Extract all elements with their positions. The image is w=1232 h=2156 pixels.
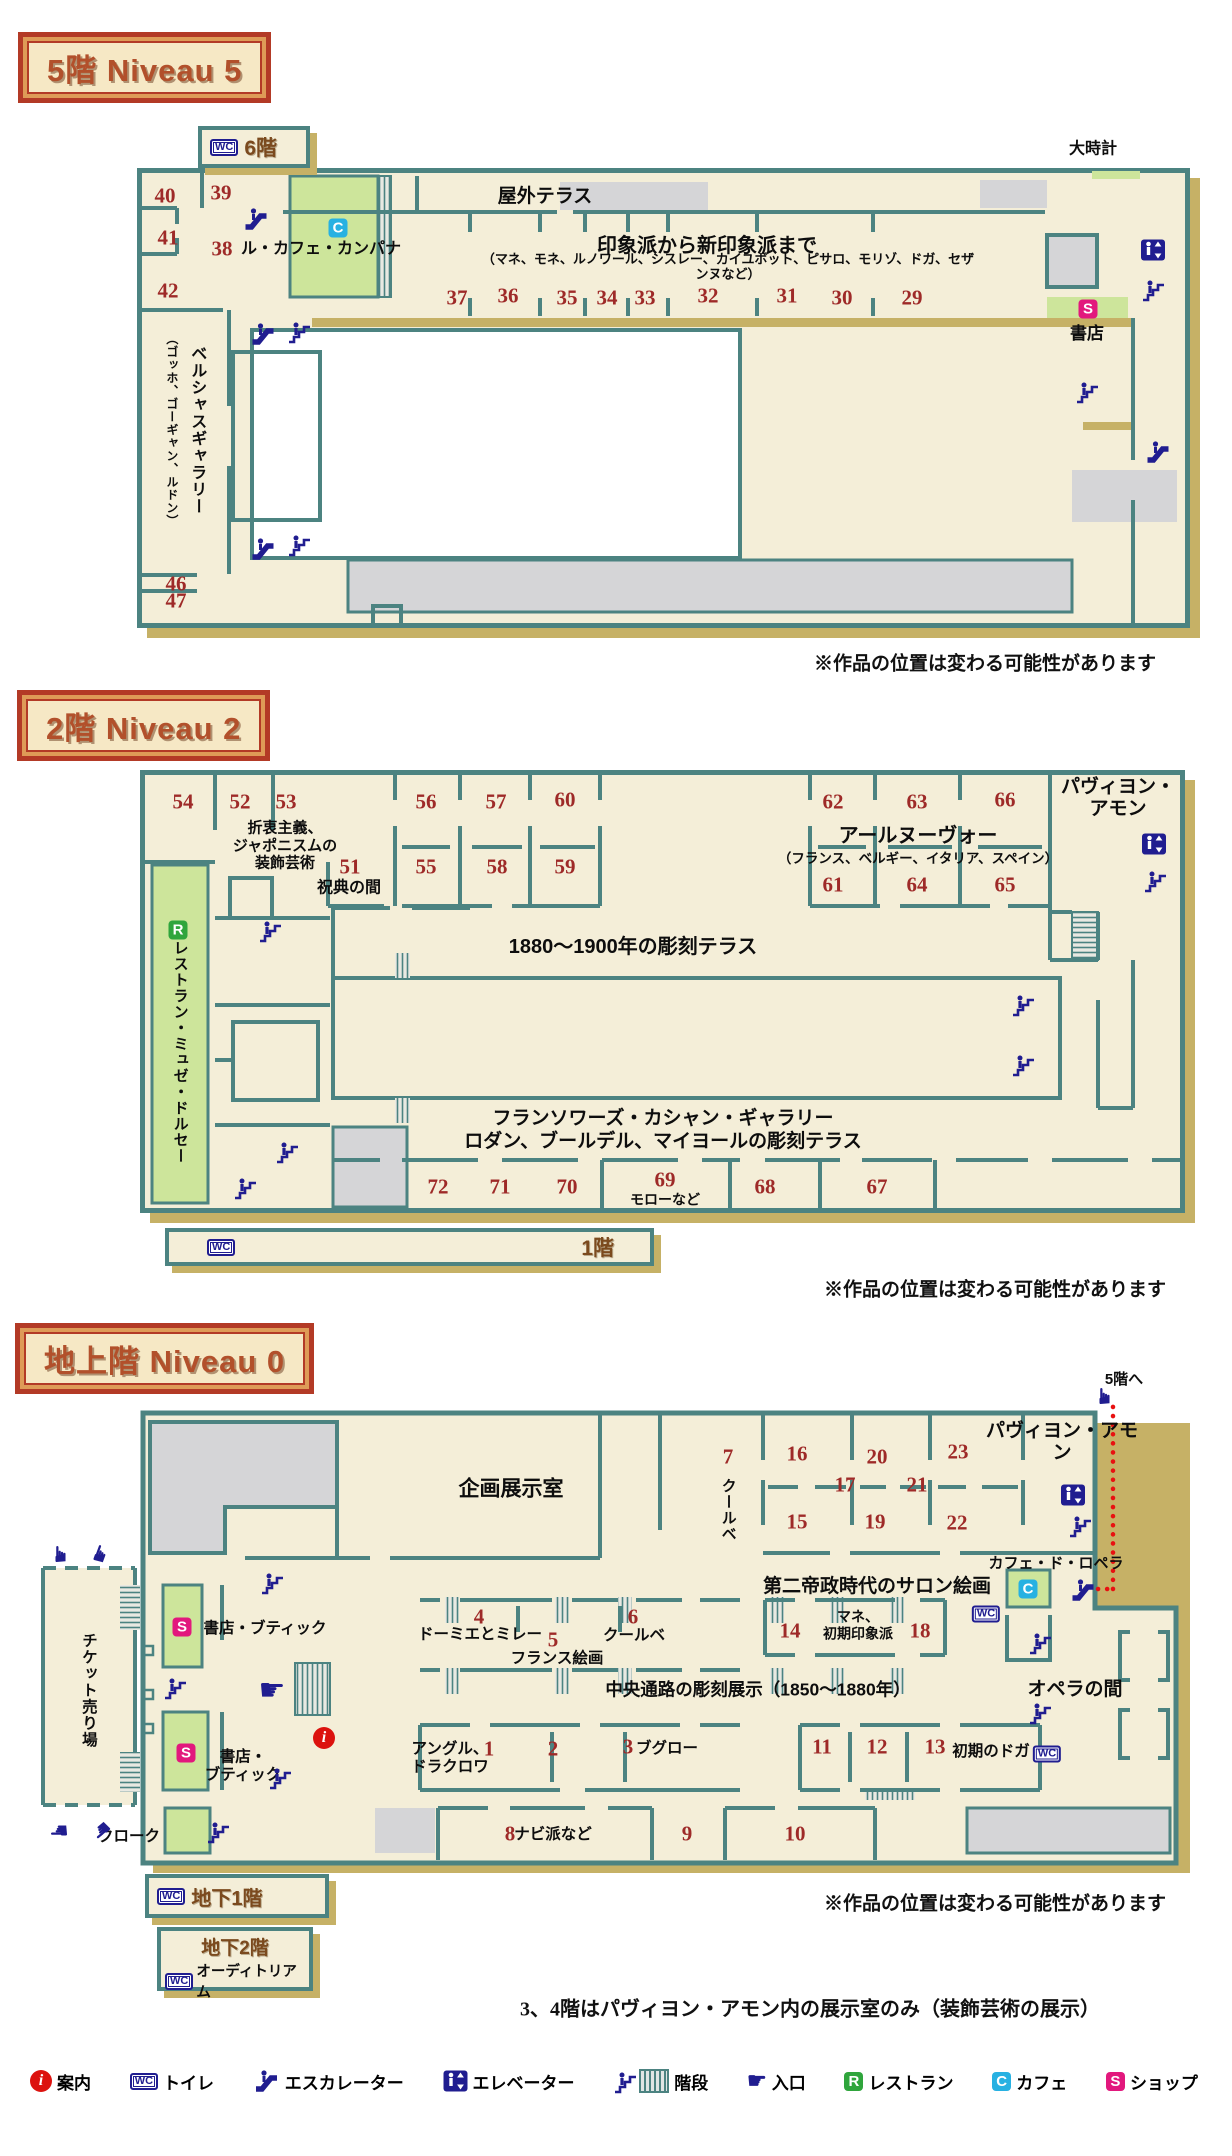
- area-label: ブグロー: [636, 1740, 698, 1758]
- shop-badge: S: [173, 1618, 192, 1637]
- area-label: 初期のドガ: [952, 1743, 1030, 1761]
- stairs-icon: [1011, 991, 1037, 1017]
- room-number: 40: [155, 184, 176, 209]
- legend-item: Cカフェ: [992, 2069, 1067, 2094]
- room-number: 9: [682, 1822, 693, 1847]
- room-number: 60: [555, 788, 576, 813]
- elevator-icon: [443, 2070, 468, 2092]
- elevator-icon: [1141, 239, 1166, 261]
- hand-icon: ☛: [259, 1676, 286, 1706]
- room-number: 64: [907, 873, 928, 898]
- room-number: 29: [902, 286, 923, 311]
- legend-label: エスカレーター: [285, 2069, 404, 2094]
- area-label: アールヌーヴォー: [839, 825, 998, 849]
- hand-icon: ☛: [87, 1541, 114, 1567]
- room-number: 70: [557, 1175, 578, 1200]
- room-number: 41: [158, 226, 179, 251]
- stairs-icon: [1028, 1699, 1054, 1725]
- stairs-icon: [206, 1818, 232, 1844]
- shop-badge: S: [1106, 2072, 1125, 2091]
- legend-item: WCトイレ: [130, 2069, 214, 2094]
- room-number: 69: [655, 1168, 676, 1193]
- room-number: 62: [823, 790, 844, 815]
- info-icon: i: [313, 1727, 335, 1749]
- stairs-icon: [275, 1138, 301, 1164]
- room-number: 67: [867, 1175, 888, 1200]
- cafe-badge: C: [1019, 1580, 1038, 1599]
- legend-label: エレベーター: [473, 2069, 575, 2094]
- floor-guide-page: { "headers":{"f5":"5階 Niveau 5","f2":"2階…: [0, 0, 1232, 2156]
- room-number: 32: [698, 284, 719, 309]
- escalator-icon: [243, 207, 270, 231]
- room-number: 15: [787, 1510, 808, 1535]
- room-number: 54: [173, 790, 194, 815]
- stairs-icon: [258, 917, 284, 943]
- room-number: 7: [723, 1445, 734, 1470]
- cafe-badge: C: [992, 2072, 1011, 2091]
- legend-label: 案内: [57, 2069, 91, 2094]
- stairs-icon: [233, 1174, 259, 1200]
- room-number: 52: [230, 790, 251, 815]
- area-label-vertical: チケット売り場: [79, 1632, 97, 1748]
- room-number: 13: [925, 1735, 946, 1760]
- shop-badge: S: [177, 1744, 196, 1763]
- room-number: 66: [995, 788, 1016, 813]
- escalator-icon: [253, 2069, 280, 2093]
- room-number: 35: [557, 286, 578, 311]
- room-number: 39: [211, 181, 232, 206]
- elevator-icon: [1142, 833, 1167, 855]
- area-label: 祝典の間: [317, 880, 381, 899]
- restaurant-badge: R: [844, 2072, 863, 2091]
- legend-item: i案内: [30, 2069, 91, 2094]
- room-number: 17: [835, 1473, 856, 1498]
- stairs-icon: [287, 531, 313, 557]
- area-label: オペラの間: [1027, 1679, 1122, 1701]
- area-label: マネ、 初期印象派: [823, 1608, 893, 1641]
- hand-icon: ☛: [50, 1544, 72, 1564]
- room-number: 33: [635, 286, 656, 311]
- room-number: 71: [490, 1175, 511, 1200]
- stairs-icon: [1028, 1629, 1054, 1655]
- room-number: 19: [865, 1510, 886, 1535]
- room-number: 63: [907, 790, 928, 815]
- room-number: 30: [832, 286, 853, 311]
- area-label: 企画展示室: [459, 1478, 564, 1503]
- room-number: 55: [416, 855, 437, 880]
- restaurant-badge: R: [169, 921, 188, 940]
- shop-badge: S: [1079, 300, 1098, 319]
- room-number: 10: [785, 1822, 806, 1847]
- elevator-icon: [1061, 1484, 1086, 1506]
- legend-label: レストラン: [868, 2069, 953, 2094]
- room-number: 6: [628, 1605, 639, 1630]
- room-number: 42: [158, 279, 179, 304]
- legend-label: カフェ: [1016, 2069, 1067, 2094]
- room-number: 3: [623, 1735, 634, 1760]
- room-number: 47: [166, 589, 187, 614]
- legend-item: エスカレーター: [253, 2069, 404, 2094]
- wc-icon: WC: [130, 2073, 158, 2090]
- legend-label: ショップ: [1130, 2069, 1198, 2094]
- stairs-icon: [1011, 1051, 1037, 1077]
- area-label: ナビ派など: [514, 1826, 592, 1844]
- info-icon: i: [30, 2070, 52, 2092]
- area-label: パヴィヨン・アモン: [1061, 777, 1175, 822]
- stairs-icon: [1068, 1512, 1094, 1538]
- room-number: 68: [755, 1175, 776, 1200]
- legend-label: 階段: [674, 2069, 708, 2094]
- hand-icon: ☛: [1094, 1386, 1116, 1406]
- room-number: 61: [823, 873, 844, 898]
- area-label-vertical: レストラン・ミュゼ・ドルセー: [171, 940, 188, 1164]
- stairs-icon: [268, 1764, 294, 1790]
- area-label: フランス絵画: [511, 1650, 604, 1668]
- room-number: 12: [867, 1735, 888, 1760]
- hand-icon: ☛: [49, 1819, 69, 1841]
- legend-item: ☛入口: [747, 2069, 806, 2094]
- legend-bar: i案内WCトイレエスカレーターエレベーター階段☛入口RレストランCカフェSショッ…: [30, 2068, 1198, 2094]
- room-number: 34: [597, 286, 618, 311]
- area-label: フランソワーズ・カシャン・ギャラリー: [492, 1108, 833, 1130]
- area-label: 第二帝政時代のサロン絵画: [763, 1576, 991, 1598]
- room-number: 5: [548, 1628, 559, 1653]
- legend-item: 階段: [613, 2068, 708, 2094]
- area-label: 屋外テラス: [498, 186, 593, 208]
- wc-icon: WC: [1033, 1746, 1061, 1763]
- room-number: 58: [487, 855, 508, 880]
- stairs-icon: [1075, 378, 1101, 404]
- escalator-icon: [1070, 1578, 1097, 1602]
- room-number: 18: [910, 1619, 931, 1644]
- area-label: （フランス、ベルギー、イタリア、スペイン）: [778, 851, 1058, 867]
- area-label: アングル、 ドラクロワ: [411, 1741, 489, 1778]
- room-number: 51: [340, 855, 361, 880]
- legend-label: トイレ: [163, 2069, 214, 2094]
- room-number: 37: [447, 286, 468, 311]
- room-number: 23: [948, 1440, 969, 1465]
- room-number: 53: [276, 790, 297, 815]
- area-label: 書店: [1070, 324, 1104, 344]
- room-number: 20: [867, 1445, 888, 1470]
- area-label: ロダン、ブールデル、マイヨールの彫刻テラス: [464, 1131, 861, 1153]
- room-number: 16: [787, 1442, 808, 1467]
- room-number: 72: [428, 1175, 449, 1200]
- wc-icon: WC: [972, 1606, 1000, 1623]
- area-label: （マネ、モネ、ルノワール、シスレー、カイユボット、ピサロ、モリゾ、ドガ、セザンヌ…: [476, 252, 980, 283]
- area-label: ドーミエとミレー: [418, 1626, 542, 1644]
- room-number: 65: [995, 873, 1016, 898]
- room-number: 56: [416, 790, 437, 815]
- stairs-icon: [1141, 276, 1167, 302]
- escalator-icon: [250, 322, 277, 346]
- area-label: パヴィヨン・アモン: [977, 1421, 1147, 1466]
- room-number: 11: [812, 1735, 832, 1760]
- room-number: 38: [212, 237, 233, 262]
- room-number: 2: [548, 1737, 559, 1762]
- stairs-icon: [260, 1569, 286, 1595]
- area-label-vertical: ベルシャスギャラリー: [187, 345, 205, 515]
- cafe-badge: C: [329, 219, 348, 238]
- room-number: 21: [907, 1473, 928, 1498]
- stairs-icon: [287, 318, 313, 344]
- legend-item: エレベーター: [443, 2069, 575, 2094]
- escalator-icon: [250, 537, 277, 561]
- hand-icon: ☛: [747, 2070, 767, 2092]
- legend-item: Rレストラン: [844, 2069, 953, 2094]
- area-label-vertical: クールベ: [719, 1478, 736, 1542]
- room-number: 57: [486, 790, 507, 815]
- room-number: 31: [777, 284, 798, 309]
- room-number: 59: [555, 855, 576, 880]
- room-number: 36: [498, 284, 519, 309]
- area-label-vertical: （ゴッホ、ゴーギャン、ルドン）: [164, 333, 178, 528]
- area-label: 書店・ブティック: [203, 1620, 326, 1638]
- area-label: カフェ・ド・ロペラ: [988, 1555, 1123, 1573]
- area-label: 中央通路の彫刻展示（1850〜1880年）: [605, 1680, 910, 1701]
- area-label: クールベ: [603, 1627, 665, 1645]
- map-overlay: 40394138423736353433323130294647大時計屋外テラス…: [0, 0, 1232, 2156]
- area-label: 大時計: [1069, 141, 1117, 160]
- stairs-hatch-icon: [613, 2068, 669, 2094]
- escalator-icon: [1145, 440, 1172, 464]
- room-number: 22: [947, 1511, 968, 1536]
- area-label: 折衷主義、 ジャポニスムの 装飾芸術: [233, 819, 337, 872]
- area-label: 1880〜1900年の彫刻テラス: [509, 936, 758, 960]
- legend-label: 入口: [772, 2069, 806, 2094]
- stairs-icon: [1143, 867, 1169, 893]
- area-label: ル・カフェ・カンパナ: [241, 241, 401, 260]
- stairs-icon: [163, 1674, 189, 1700]
- legend-item: Sショップ: [1106, 2069, 1198, 2094]
- area-label: モローなど: [630, 1192, 700, 1209]
- room-number: 14: [780, 1619, 801, 1644]
